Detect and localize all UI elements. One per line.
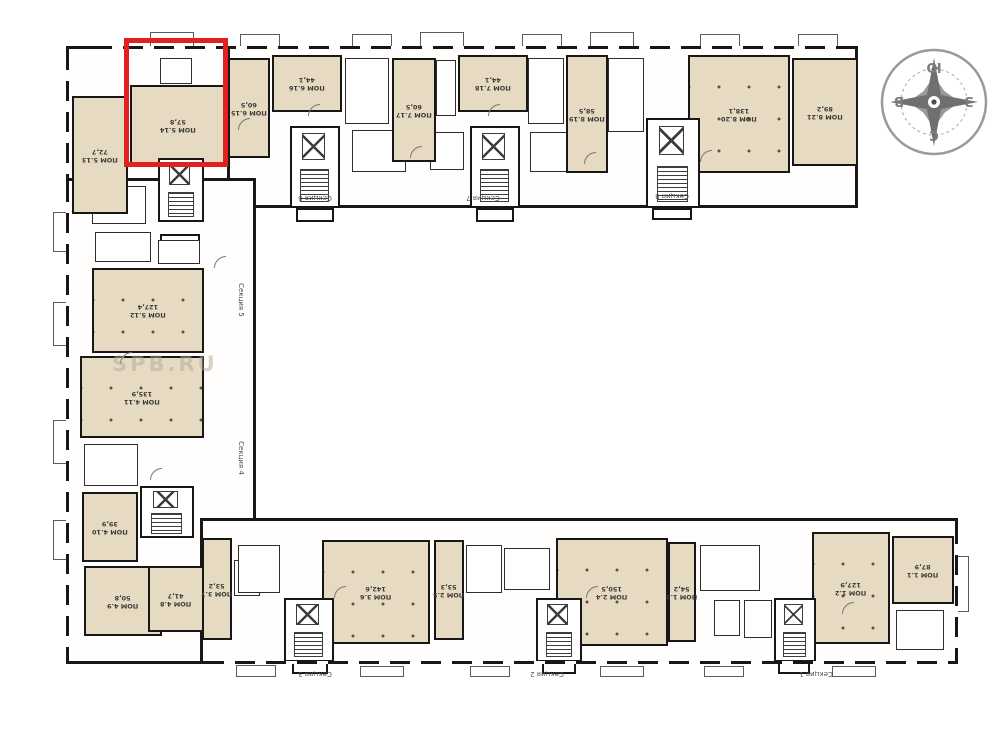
room-partition [504,548,550,590]
unit-label: ПОМ 8.2189,2 [807,104,843,121]
unit-pom-1-2[interactable]: ПОМ 1.2127,9 [812,532,890,644]
room-partition [608,58,644,132]
unit-area: 41,7 [160,591,191,599]
unit-area: 54,2 [666,584,697,592]
unit-pom-3-7[interactable]: ПОМ 3.753,2 [202,538,232,640]
balcony [53,302,67,346]
unit-area: 150,5 [596,584,627,592]
elevator-icon [296,604,319,624]
unit-area: 89,2 [807,104,843,112]
unit-number: ПОМ 1.1 [907,570,938,578]
unit-area: 39,9 [92,519,128,527]
unit-area: 58,5 [569,106,605,114]
balcony [420,32,464,47]
elevator-icon [302,133,325,160]
unit-pom-7-17[interactable]: ПОМ 7.1760,5 [392,58,436,162]
unit-area: 72,7 [82,147,118,155]
unit-number: ПОМ 4.8 [160,599,191,607]
unit-number: ПОМ 2.5 [433,590,464,598]
balcony [957,556,969,612]
balcony [53,520,67,560]
unit-label: ПОМ 5.1372,7 [82,147,118,164]
elevator-icon [169,164,190,184]
unit-label: ПОМ 4.950,8 [107,593,138,610]
balcony [470,666,510,677]
unit-number: ПОМ 2.4 [596,592,627,600]
stairs-icon [168,192,194,217]
unit-number: ПОМ 7.18 [475,84,511,92]
section-label-7: Секция 7 [459,194,507,202]
room-partition [714,600,740,636]
unit-number: ПОМ 8.21 [807,112,843,120]
room-partition [466,545,502,593]
watermark: SPB.RU [112,352,218,376]
room-partition [700,545,760,591]
elevator-icon [659,126,684,155]
unit-label: ПОМ 6.1560,5 [231,100,267,117]
unit-pom-4-10[interactable]: ПОМ 4.1039,9 [82,492,138,562]
unit-label: ПОМ 7.1760,5 [396,102,432,119]
unit-pom-1-3[interactable]: ПОМ 1.354,2 [668,542,696,642]
unit-label: ПОМ 6.1644,1 [289,75,325,92]
section-label-3: Секция 3 [291,670,339,678]
balcony [236,665,276,677]
balcony [53,212,67,252]
unit-number: ПОМ 3.7 [201,589,232,597]
unit-area: 50,8 [107,593,138,601]
window-band [66,50,69,176]
balcony [53,420,67,464]
unit-pom-2-5[interactable]: ПОМ 2.553,3 [434,540,464,640]
unit-label: ПОМ 1.2127,9 [835,580,866,597]
unit-number: ПОМ 8.19 [569,114,605,122]
unit-label: ПОМ 1.187,9 [907,562,938,579]
balcony [600,666,644,677]
unit-label: ПОМ 5.12127,4 [130,302,166,319]
room-partition [158,240,200,264]
unit-label: ПОМ 2.553,3 [433,582,464,599]
entrance-porch [652,208,692,220]
balcony [590,32,634,47]
unit-area: 127,9 [835,580,866,588]
elevator-icon [153,491,178,507]
unit-pom-5-13[interactable]: ПОМ 5.1372,7 [72,96,128,214]
unit-pom-7-18[interactable]: ПОМ 7.1844,1 [458,55,528,112]
floor-plan: SPB.RU Ю С В З ПОМ 5.1457,8ПОМ 5.1372,7П… [0,0,1000,750]
unit-label: ПОМ 4.841,7 [160,591,191,608]
unit-label: ПОМ 4.1039,9 [92,519,128,536]
entrance-porch [476,208,514,222]
unit-number: ПОМ 6.16 [289,84,325,92]
unit-area: 44,1 [475,75,511,83]
window-band [955,524,958,660]
unit-number: ПОМ 4.11 [124,397,160,405]
room-partition [436,60,456,116]
unit-number: ПОМ 6.15 [231,108,267,116]
window-band [66,182,69,660]
balcony [360,666,404,677]
unit-number: ПОМ 4.9 [107,601,138,609]
unit-number: ПОМ 5.13 [82,155,118,163]
unit-label: ПОМ 8.1958,5 [569,106,605,123]
unit-pom-5-12[interactable]: ПОМ 5.12127,4 [92,268,204,353]
stairs-icon [783,632,807,657]
unit-label: ПОМ 8.20138,1 [721,106,757,123]
stair-core [284,598,334,662]
section-label-1: Секция 1 [792,670,840,678]
unit-area: 53,3 [433,582,464,590]
unit-label: ПОМ 3.753,2 [201,581,232,598]
stair-core [774,598,816,662]
elevator-icon [547,604,568,624]
room-partition [238,545,280,593]
stair-core [140,486,194,538]
stairs-icon [151,513,182,533]
section-label-5: Секция 5 [237,276,245,324]
unit-area: 138,1 [721,106,757,114]
compass-letter-north: С [929,127,939,142]
unit-pom-8-21[interactable]: ПОМ 8.2189,2 [792,58,858,166]
entrance-porch [296,208,334,222]
unit-pom-6-15[interactable]: ПОМ 6.1560,5 [228,58,270,158]
section-label-2: Секция 2 [523,670,571,678]
unit-label: ПОМ 2.4150,5 [596,584,627,601]
unit-number: ПОМ 7.17 [396,110,432,118]
unit-area: 44,1 [289,75,325,83]
stair-core [158,158,204,222]
compass-letter-east: В [894,93,904,108]
unit-area: 142,6 [360,584,391,592]
elevator-icon [784,604,803,624]
unit-pom-4-8[interactable]: ПОМ 4.841,7 [148,566,204,632]
window-band [204,661,954,664]
room-partition [528,58,564,124]
section-label-8: Секция 8 [648,192,696,200]
unit-label: ПОМ 4.11135,9 [124,389,160,406]
stair-core [536,598,582,662]
unit-area: 53,2 [201,581,232,589]
stairs-icon [546,632,572,657]
room-partition [744,600,772,638]
unit-area: 60,5 [396,102,432,110]
unit-label: ПОМ 1.354,2 [666,584,697,601]
room-partition [84,444,138,486]
elevator-icon [482,133,505,160]
section-label-6: Секция 6 [291,194,339,202]
selected-unit-highlight [124,38,228,167]
unit-label: ПОМ 7.1844,1 [475,75,511,92]
unit-number: ПОМ 1.2 [835,588,866,596]
unit-number: ПОМ 4.10 [92,527,128,535]
unit-area: 135,9 [124,389,160,397]
room-partition [95,232,151,262]
balcony [704,666,744,677]
unit-area: 60,5 [231,100,267,108]
unit-number: ПОМ 3.6 [360,592,391,600]
section-label-4: Секция 4 [237,434,245,482]
unit-number: ПОМ 8.20 [721,114,757,122]
stairs-icon [294,632,323,657]
unit-number: ПОМ 5.12 [130,311,166,319]
unit-area: 87,9 [907,562,938,570]
unit-pom-6-16[interactable]: ПОМ 6.1644,1 [272,55,342,112]
compass-letter-south: Ю [926,59,941,74]
unit-pom-1-1[interactable]: ПОМ 1.187,9 [892,536,954,604]
room-partition [896,610,944,650]
compass-letter-west: З [964,93,973,108]
unit-area: 127,4 [130,302,166,310]
compass-rose-icon: Ю С В З [878,46,990,158]
room-partition [345,58,389,124]
unit-number: ПОМ 1.3 [666,592,697,600]
unit-label: ПОМ 3.6142,6 [360,584,391,601]
